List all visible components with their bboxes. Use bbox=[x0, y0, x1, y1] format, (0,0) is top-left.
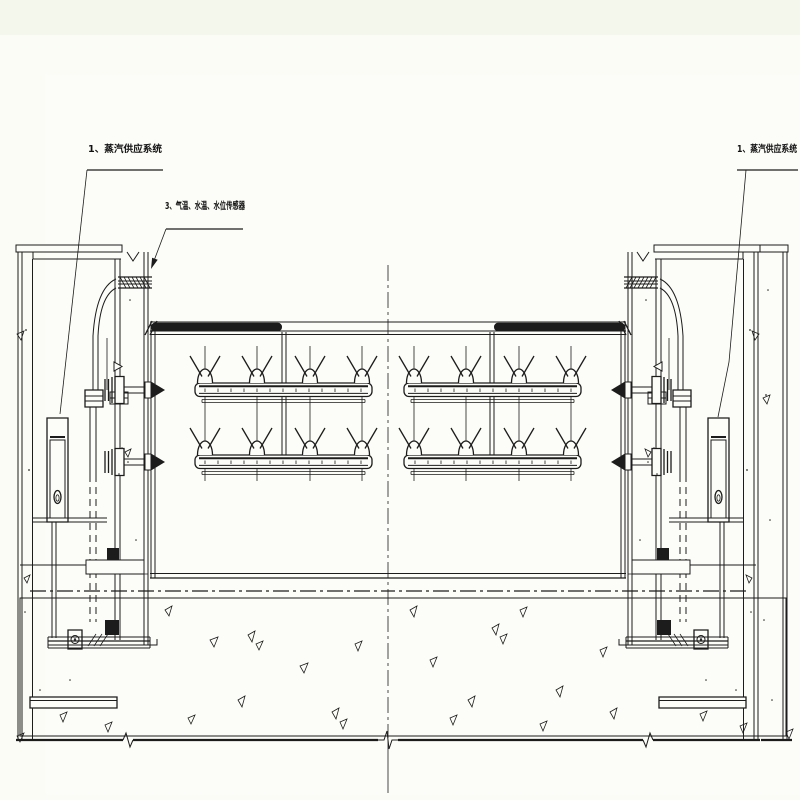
page-top-band bbox=[0, 0, 800, 35]
drawing-sheet bbox=[45, 75, 800, 795]
engineering-drawing: 1、蒸汽供应系统 3、气温、水温、水位传感器 1、蒸汽供应系统 bbox=[0, 0, 800, 800]
callout-right-label: 1、蒸汽供应系统 bbox=[737, 143, 797, 155]
callout-sensors-label: 3、气温、水温、水位传感器 bbox=[165, 200, 245, 212]
callout-left-label: 1、蒸汽供应系统 bbox=[88, 143, 162, 155]
